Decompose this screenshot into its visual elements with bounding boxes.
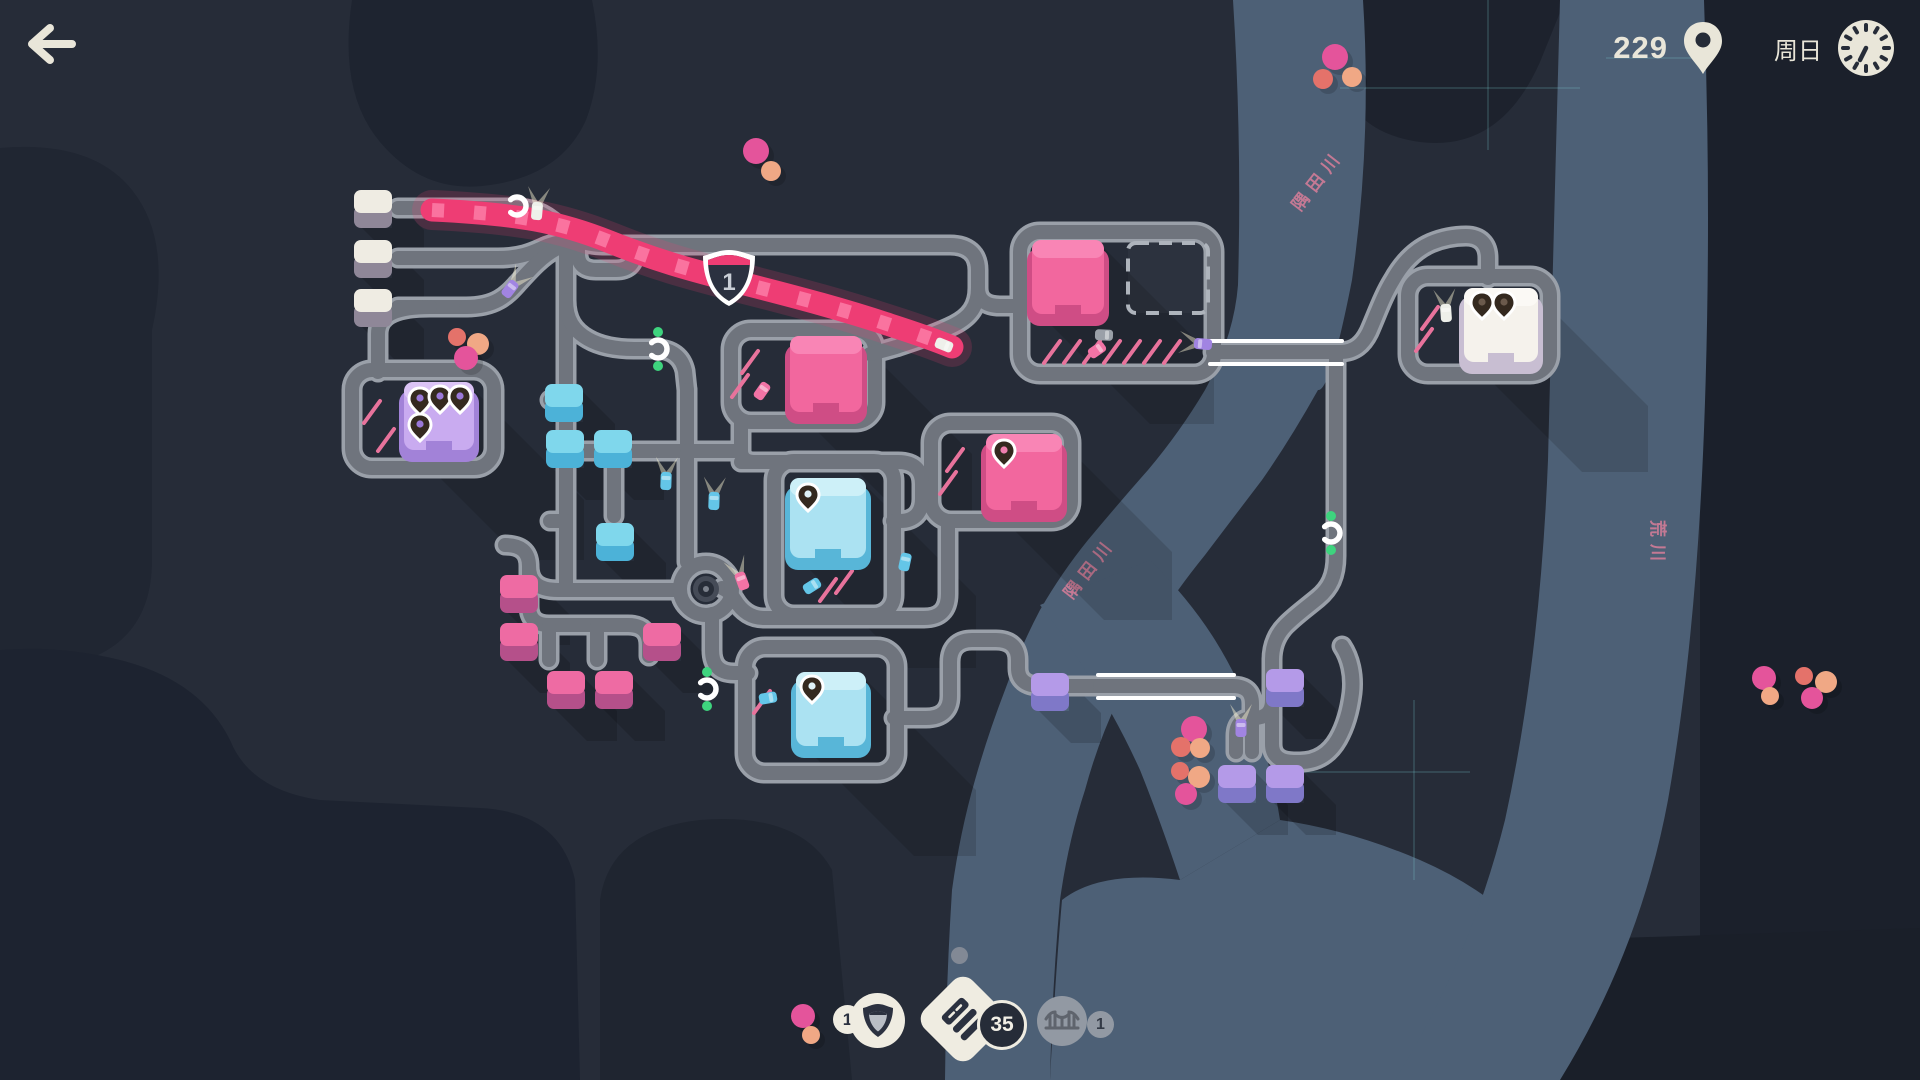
bridge-count-badge: 1: [1087, 1011, 1114, 1038]
waiting-pin: [1190, 738, 1210, 758]
house-pink: [500, 623, 538, 661]
parking-line: [1422, 307, 1438, 329]
house-gray: [354, 240, 392, 278]
waiting-pin: [448, 328, 466, 346]
destination-building: [785, 478, 871, 570]
waiting-pin: [1175, 783, 1197, 805]
parking-line: [378, 429, 394, 451]
clock-icon[interactable]: [1836, 18, 1896, 78]
house-gray: [354, 190, 392, 228]
destination-building: [1027, 240, 1109, 326]
house-pink: [500, 575, 538, 613]
waiting-pin: [1171, 737, 1191, 757]
car-pink: [752, 380, 771, 401]
parking-line: [742, 351, 758, 373]
terrain-patch: [0, 649, 580, 1080]
house-purple: [1266, 765, 1304, 803]
waiting-pin: [761, 161, 781, 181]
house-blue: [545, 384, 583, 422]
hud-topbar: 229 周日: [1613, 18, 1896, 78]
back-arrow-icon: [24, 22, 80, 66]
motorway-shield-icon: [861, 1002, 895, 1040]
waiting-pin: [743, 138, 769, 164]
river-label: 荒川: [1648, 519, 1668, 568]
terrain-patch: [1336, 0, 1565, 143]
waiting-pin: [1801, 687, 1823, 709]
waiting-pin: [1752, 666, 1776, 690]
destination-building: [981, 434, 1067, 522]
inventory-drag-handle[interactable]: [951, 947, 968, 964]
house-blue: [594, 430, 632, 468]
car-blue: [758, 691, 778, 705]
destination-building: [399, 382, 479, 462]
bridge-icon: [1043, 1002, 1081, 1040]
waiting-pin: [802, 1026, 820, 1044]
house-purple: [1031, 673, 1069, 711]
car-blue: [703, 477, 726, 511]
house-purple: [1218, 765, 1256, 803]
house-pink: [643, 623, 681, 661]
house-blue: [546, 430, 584, 468]
waiting-pin: [1342, 67, 1362, 87]
waiting-pin: [791, 1004, 815, 1028]
dashed-upgrade-zone: [1128, 243, 1208, 313]
destination-building: [785, 336, 867, 424]
game-screen: 隅田川隅田川荒川1 229 周日: [0, 0, 1920, 1080]
parking-line: [1044, 341, 1060, 363]
map-pin-icon: [1682, 20, 1724, 76]
house-blue: [596, 523, 634, 561]
house-pink: [595, 671, 633, 709]
house-gray: [354, 289, 392, 327]
waiting-pin: [1761, 687, 1779, 705]
house-purple: [1266, 669, 1304, 707]
parking-line: [364, 401, 380, 423]
waiting-pin: [1795, 667, 1813, 685]
road-count-badge: 35: [977, 1000, 1027, 1050]
car-blue: [801, 577, 822, 596]
house-pink: [547, 671, 585, 709]
inventory-bridge-item[interactable]: [1037, 996, 1087, 1046]
waiting-pin: [454, 346, 478, 370]
waiting-pin: [1313, 69, 1333, 89]
back-button[interactable]: [24, 22, 80, 66]
road-count: 35: [990, 1013, 1013, 1037]
waiting-pin: [1171, 762, 1189, 780]
waiting-pin: [1322, 44, 1348, 70]
destination-building: [791, 672, 871, 758]
bridge-count: 1: [1096, 1016, 1105, 1034]
car-gray: [1095, 329, 1113, 341]
city-map[interactable]: 隅田川隅田川荒川1: [0, 0, 1920, 1080]
roundabout-center: [703, 586, 709, 592]
terrain-patch: [1700, 0, 1920, 1080]
inventory-motorway-item[interactable]: [850, 993, 905, 1048]
motorway-shield-number: 1: [722, 269, 735, 296]
terrain-patch: [0, 147, 159, 682]
destination-building: [1459, 288, 1543, 374]
terrain-patch: [349, 0, 598, 187]
day-label: 周日: [1774, 31, 1822, 66]
score-value: 229: [1613, 30, 1668, 66]
